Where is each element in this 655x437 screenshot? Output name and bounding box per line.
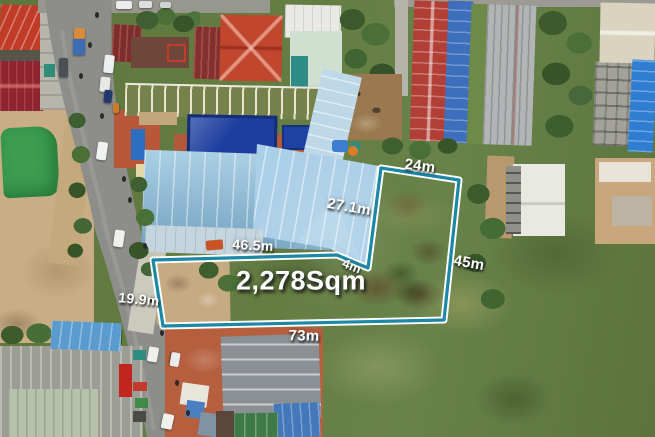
plot-boundary-core [153,168,459,326]
plot-boundary-edge [153,168,459,326]
aerial-photo: 24m 27.1m 46.5m 4m 45m 19.9m 73m 2,278Sq… [0,0,655,437]
label-top-edge: 24m [404,156,437,177]
label-plot-area: 2,278Sqm [236,266,366,297]
label-bottom-edge: 73m [288,327,319,345]
plot-boundary [0,0,655,437]
label-inner-top-edge: 46.5m [232,236,274,254]
